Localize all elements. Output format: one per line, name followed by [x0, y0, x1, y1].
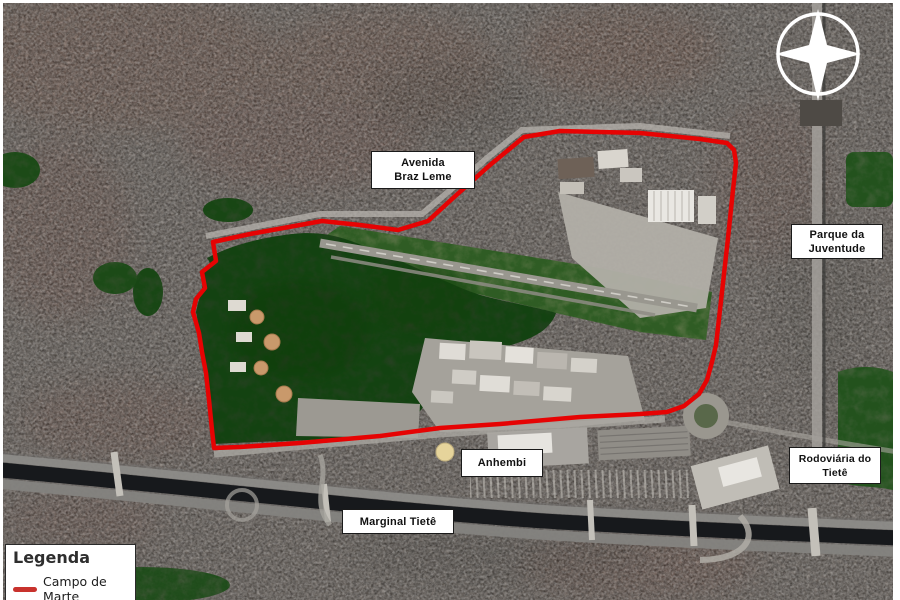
legend-title: Legenda [13, 548, 135, 567]
map-label-anhembi: Anhembi [461, 449, 543, 477]
anhembi-dome [436, 443, 454, 461]
label-line: Juventude [809, 242, 866, 256]
map-label-rodoviaria-do-tiete: Rodoviária do Tietê [789, 447, 881, 484]
label-line: Avenida [401, 156, 445, 170]
legend-item: Campo de Marte [13, 574, 135, 600]
label-line: Marginal Tietê [360, 515, 437, 529]
legend-item-label: Campo de Marte [43, 574, 135, 600]
label-line: Tietê [822, 466, 847, 480]
label-line: Rodoviária do [799, 452, 872, 466]
label-line: Braz Leme [394, 170, 451, 184]
map-screenshot: Avenida Braz Leme Parque da Juventude An… [0, 0, 900, 600]
map-label-marginal-tiete: Marginal Tietê [342, 509, 454, 534]
map-label-parque-da-juventude: Parque da Juventude [791, 224, 883, 259]
map-label-avenida-braz-leme: Avenida Braz Leme [371, 151, 475, 189]
boundary-line-swatch [13, 587, 37, 592]
label-line: Anhembi [478, 456, 526, 470]
label-line: Parque da [810, 228, 865, 242]
legend-box: Legenda Campo de Marte [5, 544, 136, 600]
